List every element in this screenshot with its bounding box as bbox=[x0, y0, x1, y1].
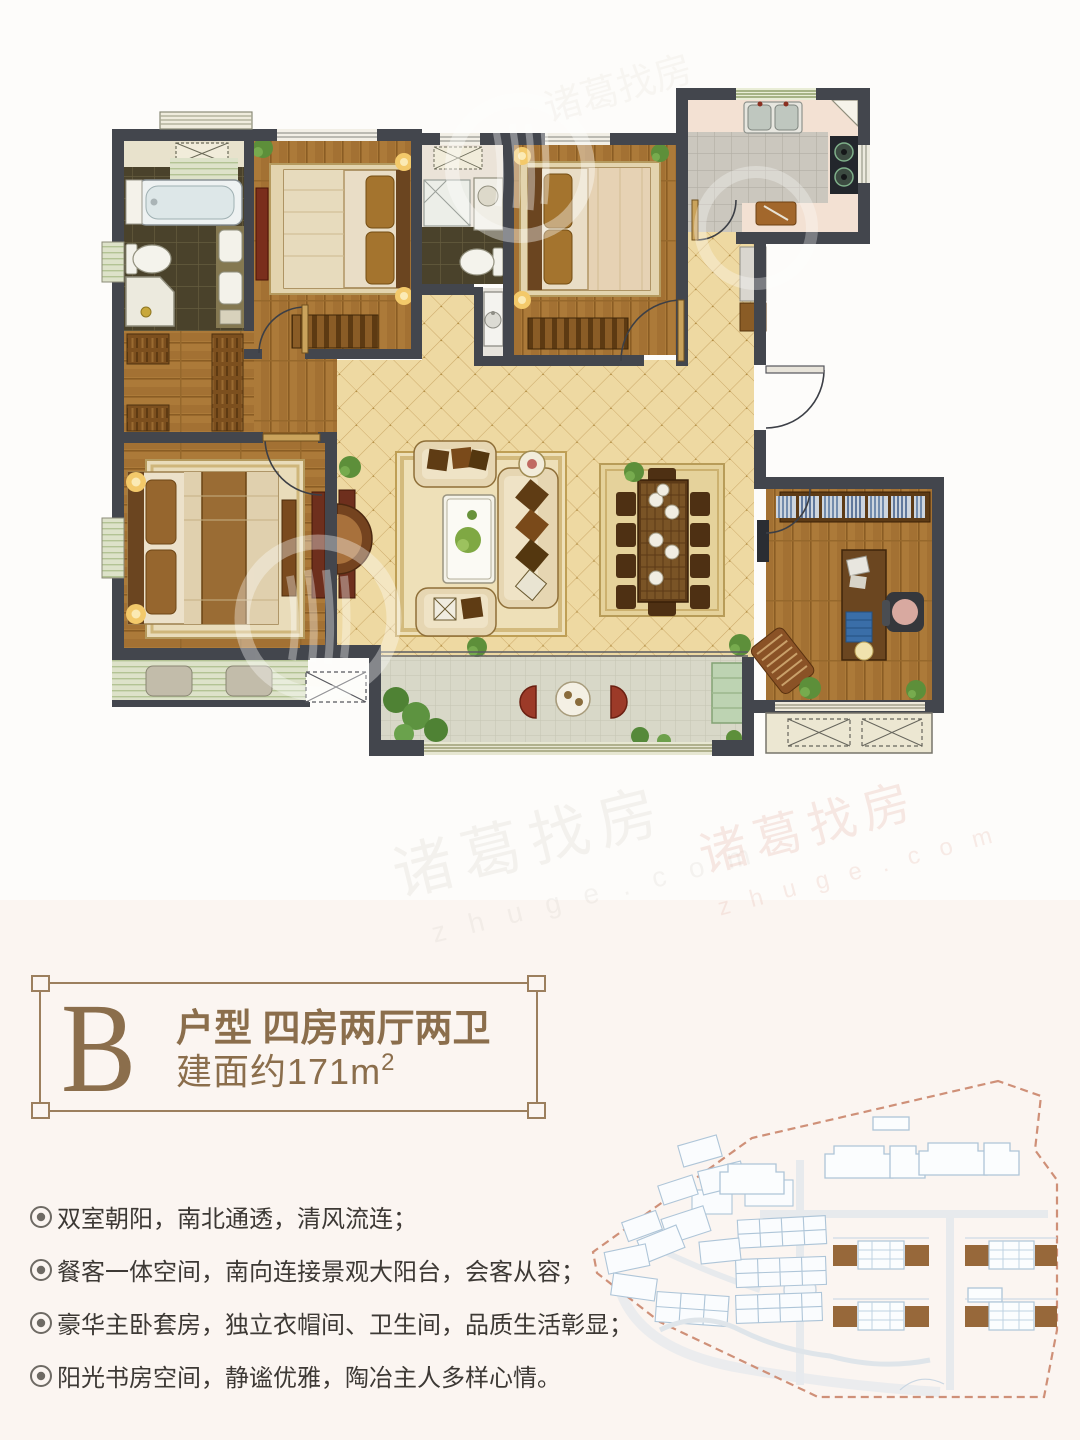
svg-text:双室朝阳，南北通透，清风流连；: 双室朝阳，南北通透，清风流连； bbox=[57, 1206, 417, 1233]
svg-text:餐客一体空间，南向连接景观大阳台，会客从容；: 餐客一体空间，南向连接景观大阳台，会客从容； bbox=[57, 1259, 585, 1286]
svg-text:豪华主卧套房，独立衣帽间、卫生间，品质生活彰显；: 豪华主卧套房，独立衣帽间、卫生间，品质生活彰显； bbox=[57, 1312, 633, 1339]
svg-text:B: B bbox=[61, 978, 136, 1119]
svg-text:建面约171m2: 建面约171m2 bbox=[176, 1049, 395, 1092]
svg-text:户型 四房两厅两卫: 户型 四房两厅两卫 bbox=[176, 1008, 491, 1050]
svg-text:阳光书房空间，静谧优雅，陶冶主人多样心情。: 阳光书房空间，静谧优雅，陶冶主人多样心情。 bbox=[57, 1365, 561, 1392]
